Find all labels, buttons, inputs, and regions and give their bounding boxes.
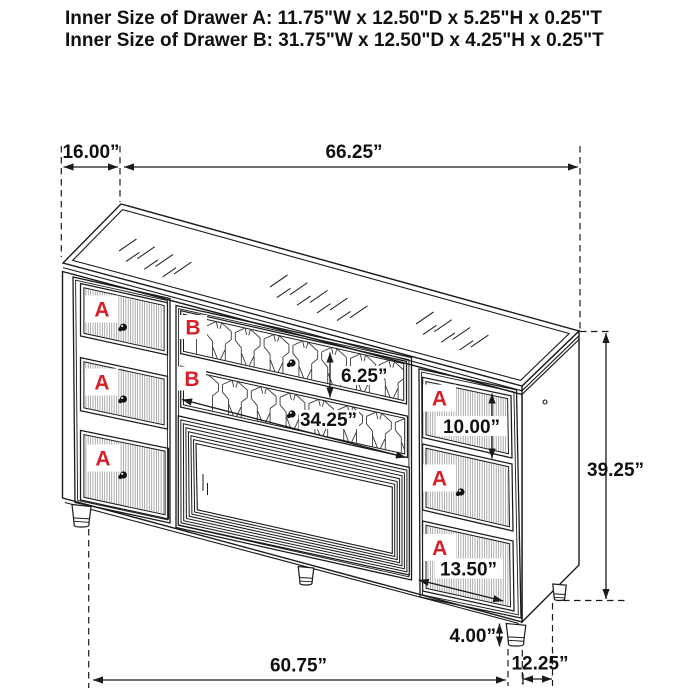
svg-text:16.00”: 16.00” <box>62 142 119 163</box>
svg-text:A: A <box>94 372 109 395</box>
svg-text:34.25”: 34.25” <box>300 410 357 431</box>
svg-text:6.25”: 6.25” <box>341 366 387 387</box>
svg-text:A: A <box>432 468 447 491</box>
svg-text:Inner Size of Drawer B: 31.75": Inner Size of Drawer B: 31.75"W x 12.50"… <box>65 30 604 51</box>
svg-text:A: A <box>94 299 109 322</box>
svg-text:B: B <box>185 317 200 340</box>
svg-text:13.50”: 13.50” <box>440 560 497 581</box>
svg-text:A: A <box>95 448 110 471</box>
svg-text:10.00”: 10.00” <box>443 417 500 438</box>
svg-text:A: A <box>432 537 447 560</box>
svg-text:4.00”: 4.00” <box>450 626 496 647</box>
svg-text:12.25”: 12.25” <box>511 654 568 675</box>
svg-text:39.25”: 39.25” <box>587 460 644 481</box>
svg-text:B: B <box>184 368 199 391</box>
svg-text:60.75”: 60.75” <box>270 656 327 677</box>
svg-text:A: A <box>432 388 447 411</box>
svg-text:Inner Size of Drawer A: 11.75": Inner Size of Drawer A: 11.75"W x 12.50"… <box>65 8 602 29</box>
svg-text:66.25”: 66.25” <box>325 142 382 163</box>
